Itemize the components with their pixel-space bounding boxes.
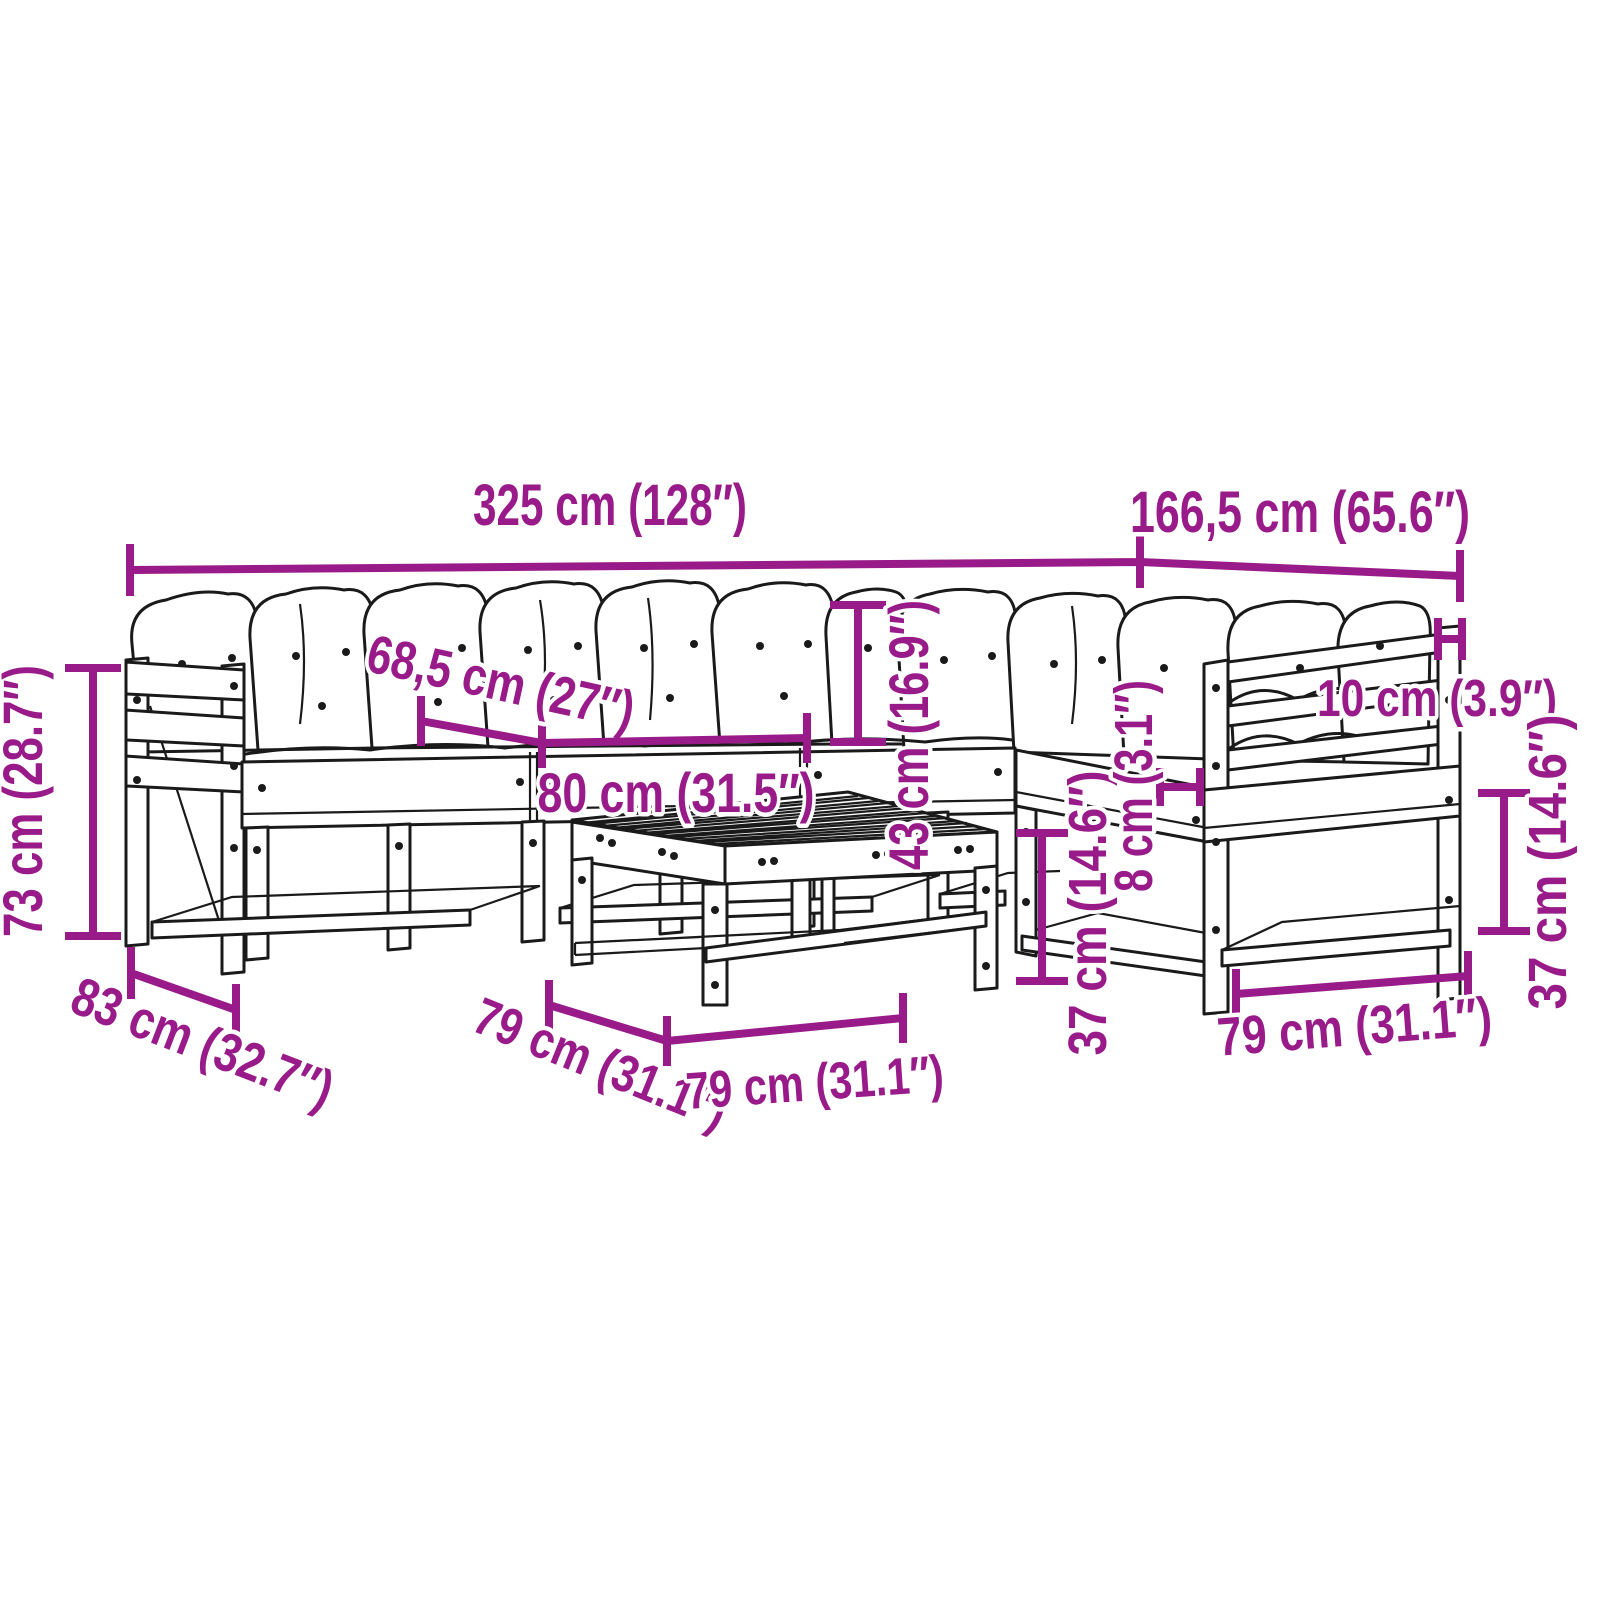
dim-table-width-label: 79 cm (31.1″)	[684, 1045, 945, 1121]
dim-table-width: 79 cm (31.1″)	[667, 993, 946, 1121]
diagram-canvas: 325 cm (128″) 166,5 cm (65.6″) 68,5 cm (…	[0, 0, 1600, 1600]
dim-right-section-width: 166,5 cm (65.6″)	[1130, 480, 1470, 602]
dim-overall-width-label: 325 cm (128″)	[473, 473, 747, 538]
dim-overall-height-label: 73 cm (28.7″)	[0, 665, 54, 937]
dim-overall-height: 73 cm (28.7″)	[0, 665, 121, 937]
dim-cushion-thickness-label: 8 cm (3.1″)	[1104, 680, 1164, 892]
dim-overall-width: 325 cm (128″)	[130, 473, 1140, 596]
dim-seat-depth-label: 80 cm (31.5″)	[538, 761, 815, 824]
dim-overall-depth: 83 cm (32.7″)	[63, 947, 341, 1120]
dim-seat-unit-width-label: 79 cm (31.1″)	[1215, 986, 1494, 1067]
dim-overall-depth-label: 83 cm (32.7″)	[63, 966, 341, 1121]
furniture-dimension-diagram: 325 cm (128″) 166,5 cm (65.6″) 68,5 cm (…	[0, 0, 1600, 1600]
dim-seat-height: 37 cm (14.6″)	[1478, 715, 1578, 1010]
dim-seat-height-label: 37 cm (14.6″)	[1518, 715, 1578, 1010]
dim-right-section-width-label: 166,5 cm (65.6″)	[1130, 480, 1470, 545]
dim-back-cushion-height-label: 43 cm (16.9″)	[877, 600, 940, 870]
